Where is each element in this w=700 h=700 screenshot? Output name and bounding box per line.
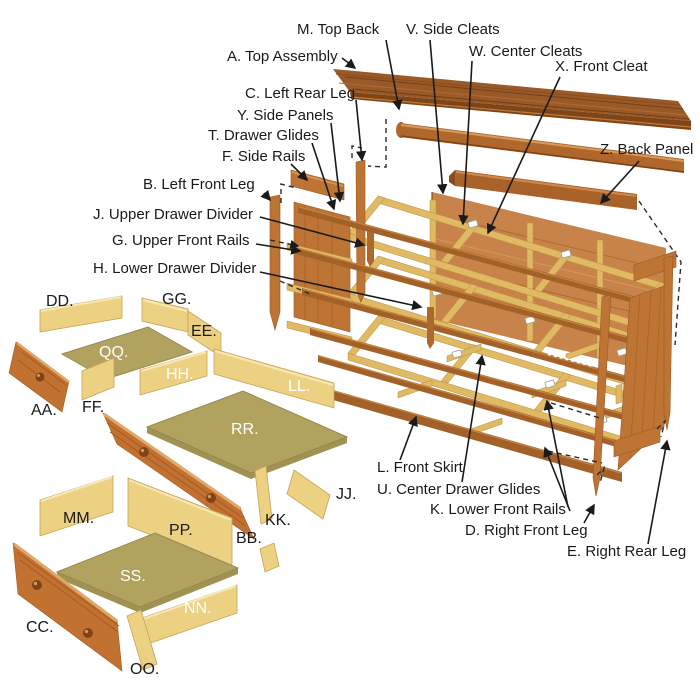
exploded-dresser-diagram: M. Top Back V. Side Cleats A. Top Assemb…: [0, 0, 700, 700]
callout-right-rear-leg: E. Right Rear Leg: [567, 544, 686, 560]
part-label-qq: QQ.: [99, 345, 128, 362]
part-label-bb: BB.: [236, 531, 262, 548]
drawer-knob: [36, 373, 45, 382]
assembly-guide-dash: [368, 119, 386, 167]
callout-front-cleat: X. Front Cleat: [555, 59, 648, 75]
part-label-nn: NN.: [184, 601, 212, 618]
part-label-rr: RR.: [231, 422, 259, 439]
left-side-assembly: [270, 146, 365, 344]
part-label-ss: SS.: [120, 569, 146, 586]
drawer-side-jj: [287, 470, 330, 519]
part-label-hh: HH.: [166, 367, 194, 384]
callout-upper-front-rails: G. Upper Front Rails: [112, 233, 250, 249]
drawer-knob: [83, 628, 93, 638]
callout-left-rear-leg: C. Left Rear Leg: [245, 86, 355, 102]
part-label-ll: LL.: [288, 379, 310, 396]
drawer-subfront-bb: [260, 543, 279, 572]
callout-upper-drawer-divider: J. Upper Drawer Divider: [93, 207, 253, 223]
part-label-ee: EE.: [191, 324, 217, 341]
right-rear-leg: [664, 256, 673, 430]
part-label-dd: DD.: [46, 294, 74, 311]
callout-side-cleats: V. Side Cleats: [406, 22, 500, 38]
callout-right-front-leg: D. Right Front Leg: [465, 523, 588, 539]
part-label-aa: AA.: [31, 403, 57, 420]
callout-back-panel: Z. Back Panel: [600, 142, 693, 158]
part-label-gg: GG.: [162, 292, 191, 309]
drawer-knob: [206, 493, 216, 503]
part-label-cc: CC.: [26, 620, 54, 637]
callout-left-front-leg: B. Left Front Leg: [143, 177, 255, 193]
callout-top-back: M. Top Back: [297, 22, 379, 38]
drawer-knob: [32, 580, 42, 590]
part-label-mm: MM.: [63, 511, 94, 528]
callout-front-skirt: L. Front Skirt: [377, 460, 463, 476]
part-label-kk: KK.: [265, 513, 291, 530]
callout-lower-front-rails: K. Lower Front Rails: [430, 502, 566, 518]
drawer-knob: [139, 447, 149, 457]
part-label-oo: OO.: [130, 662, 159, 679]
callout-lower-drawer-divider: H. Lower Drawer Divider: [93, 261, 256, 277]
callout-side-rails: F. Side Rails: [222, 149, 305, 165]
callout-drawer-glides: T. Drawer Glides: [208, 128, 319, 144]
part-label-pp: PP.: [169, 523, 193, 540]
callout-center-drawer-glides: U. Center Drawer Glides: [377, 482, 540, 498]
lower-drawer-divider: [427, 307, 434, 349]
part-label-jj: JJ.: [336, 487, 356, 504]
callout-side-panels: Y. Side Panels: [237, 108, 333, 124]
part-label-ff: FF.: [82, 400, 104, 417]
callout-top-assembly: A. Top Assembly: [227, 49, 338, 65]
left-front-leg: [270, 195, 280, 330]
left-rear-leg: [356, 160, 365, 302]
